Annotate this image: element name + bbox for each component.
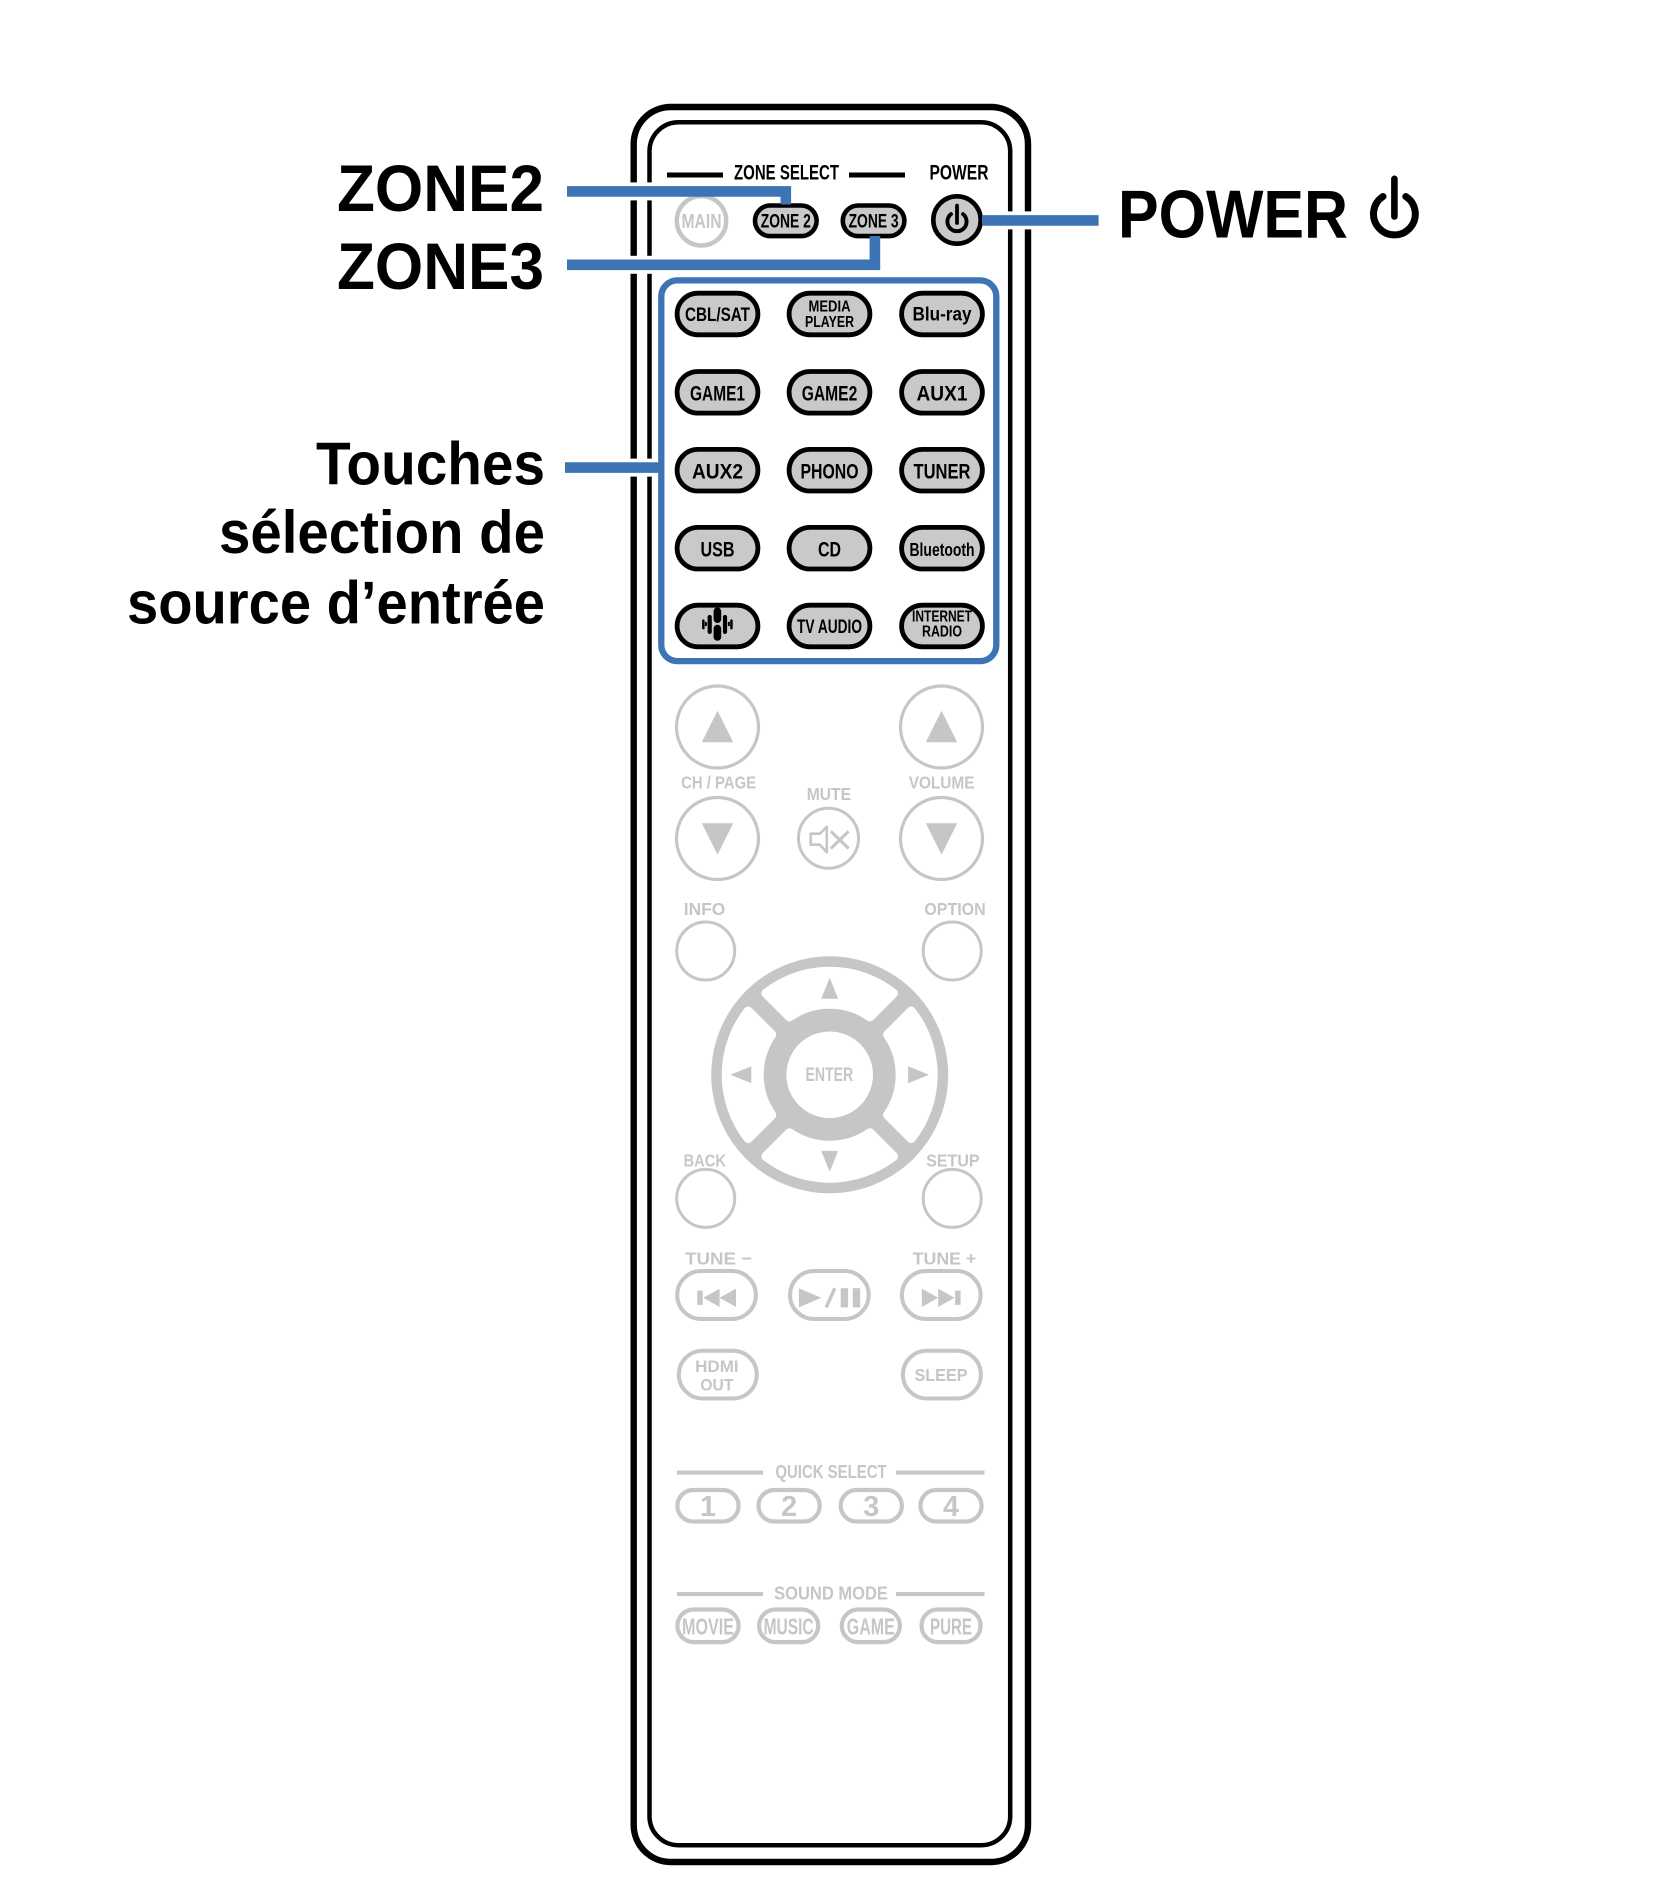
svg-text:SLEEP: SLEEP: [915, 1365, 968, 1385]
svg-text:INFO: INFO: [684, 899, 726, 919]
svg-text:source d’entrée: source d’entrée: [127, 569, 545, 636]
svg-text:ZONE2: ZONE2: [337, 151, 544, 225]
svg-text:CH / PAGE: CH / PAGE: [681, 773, 756, 793]
svg-text:ZONE 3: ZONE 3: [849, 212, 899, 233]
svg-text:QUICK SELECT: QUICK SELECT: [775, 1462, 886, 1482]
svg-text:CD: CD: [818, 537, 841, 561]
svg-text:3: 3: [863, 1490, 879, 1522]
svg-text:TUNE −: TUNE −: [685, 1249, 752, 1269]
svg-text:Blu-ray: Blu-ray: [913, 305, 972, 326]
svg-text:ENTER: ENTER: [806, 1065, 854, 1086]
svg-text:POWER: POWER: [1118, 177, 1348, 253]
svg-text:AUX1: AUX1: [917, 382, 968, 406]
svg-text:MOVIE: MOVIE: [682, 1613, 734, 1639]
svg-text:ZONE SELECT: ZONE SELECT: [734, 161, 839, 185]
svg-text:OPTION: OPTION: [924, 899, 985, 919]
svg-text:4: 4: [943, 1490, 959, 1522]
svg-text:PURE: PURE: [930, 1613, 972, 1639]
svg-text:VOLUME: VOLUME: [909, 773, 975, 793]
svg-text:MUSIC: MUSIC: [764, 1613, 814, 1639]
svg-text:AUX2: AUX2: [692, 459, 743, 483]
svg-text:RADIO: RADIO: [922, 624, 962, 641]
svg-text:2: 2: [781, 1490, 797, 1522]
svg-text:Bluetooth: Bluetooth: [910, 540, 975, 560]
svg-text:HDMI: HDMI: [695, 1357, 739, 1376]
svg-text:PHONO: PHONO: [801, 459, 859, 483]
svg-text:TUNE +: TUNE +: [913, 1249, 977, 1269]
svg-text:OUT: OUT: [700, 1376, 733, 1395]
svg-text:GAME1: GAME1: [690, 382, 745, 406]
svg-text:GAME2: GAME2: [802, 382, 858, 406]
svg-text:TV AUDIO: TV AUDIO: [797, 617, 862, 638]
svg-text:ZONE3: ZONE3: [337, 229, 544, 303]
svg-text:BACK: BACK: [683, 1150, 726, 1170]
svg-text:MUTE: MUTE: [807, 784, 852, 804]
svg-text:Touches: Touches: [316, 431, 545, 498]
svg-text:ZONE 2: ZONE 2: [761, 212, 811, 233]
svg-text:USB: USB: [701, 537, 735, 561]
svg-text:TUNER: TUNER: [914, 459, 971, 483]
svg-text:MAIN: MAIN: [682, 211, 722, 233]
svg-text:SETUP: SETUP: [926, 1150, 980, 1170]
svg-text:POWER: POWER: [930, 161, 989, 185]
svg-text:sélection de: sélection de: [219, 499, 545, 566]
svg-text:GAME: GAME: [847, 1613, 895, 1639]
svg-text:SOUND MODE: SOUND MODE: [774, 1583, 888, 1603]
svg-text:1: 1: [700, 1490, 716, 1522]
svg-text:PLAYER: PLAYER: [805, 314, 854, 331]
svg-text:CBL/SAT: CBL/SAT: [685, 305, 750, 326]
